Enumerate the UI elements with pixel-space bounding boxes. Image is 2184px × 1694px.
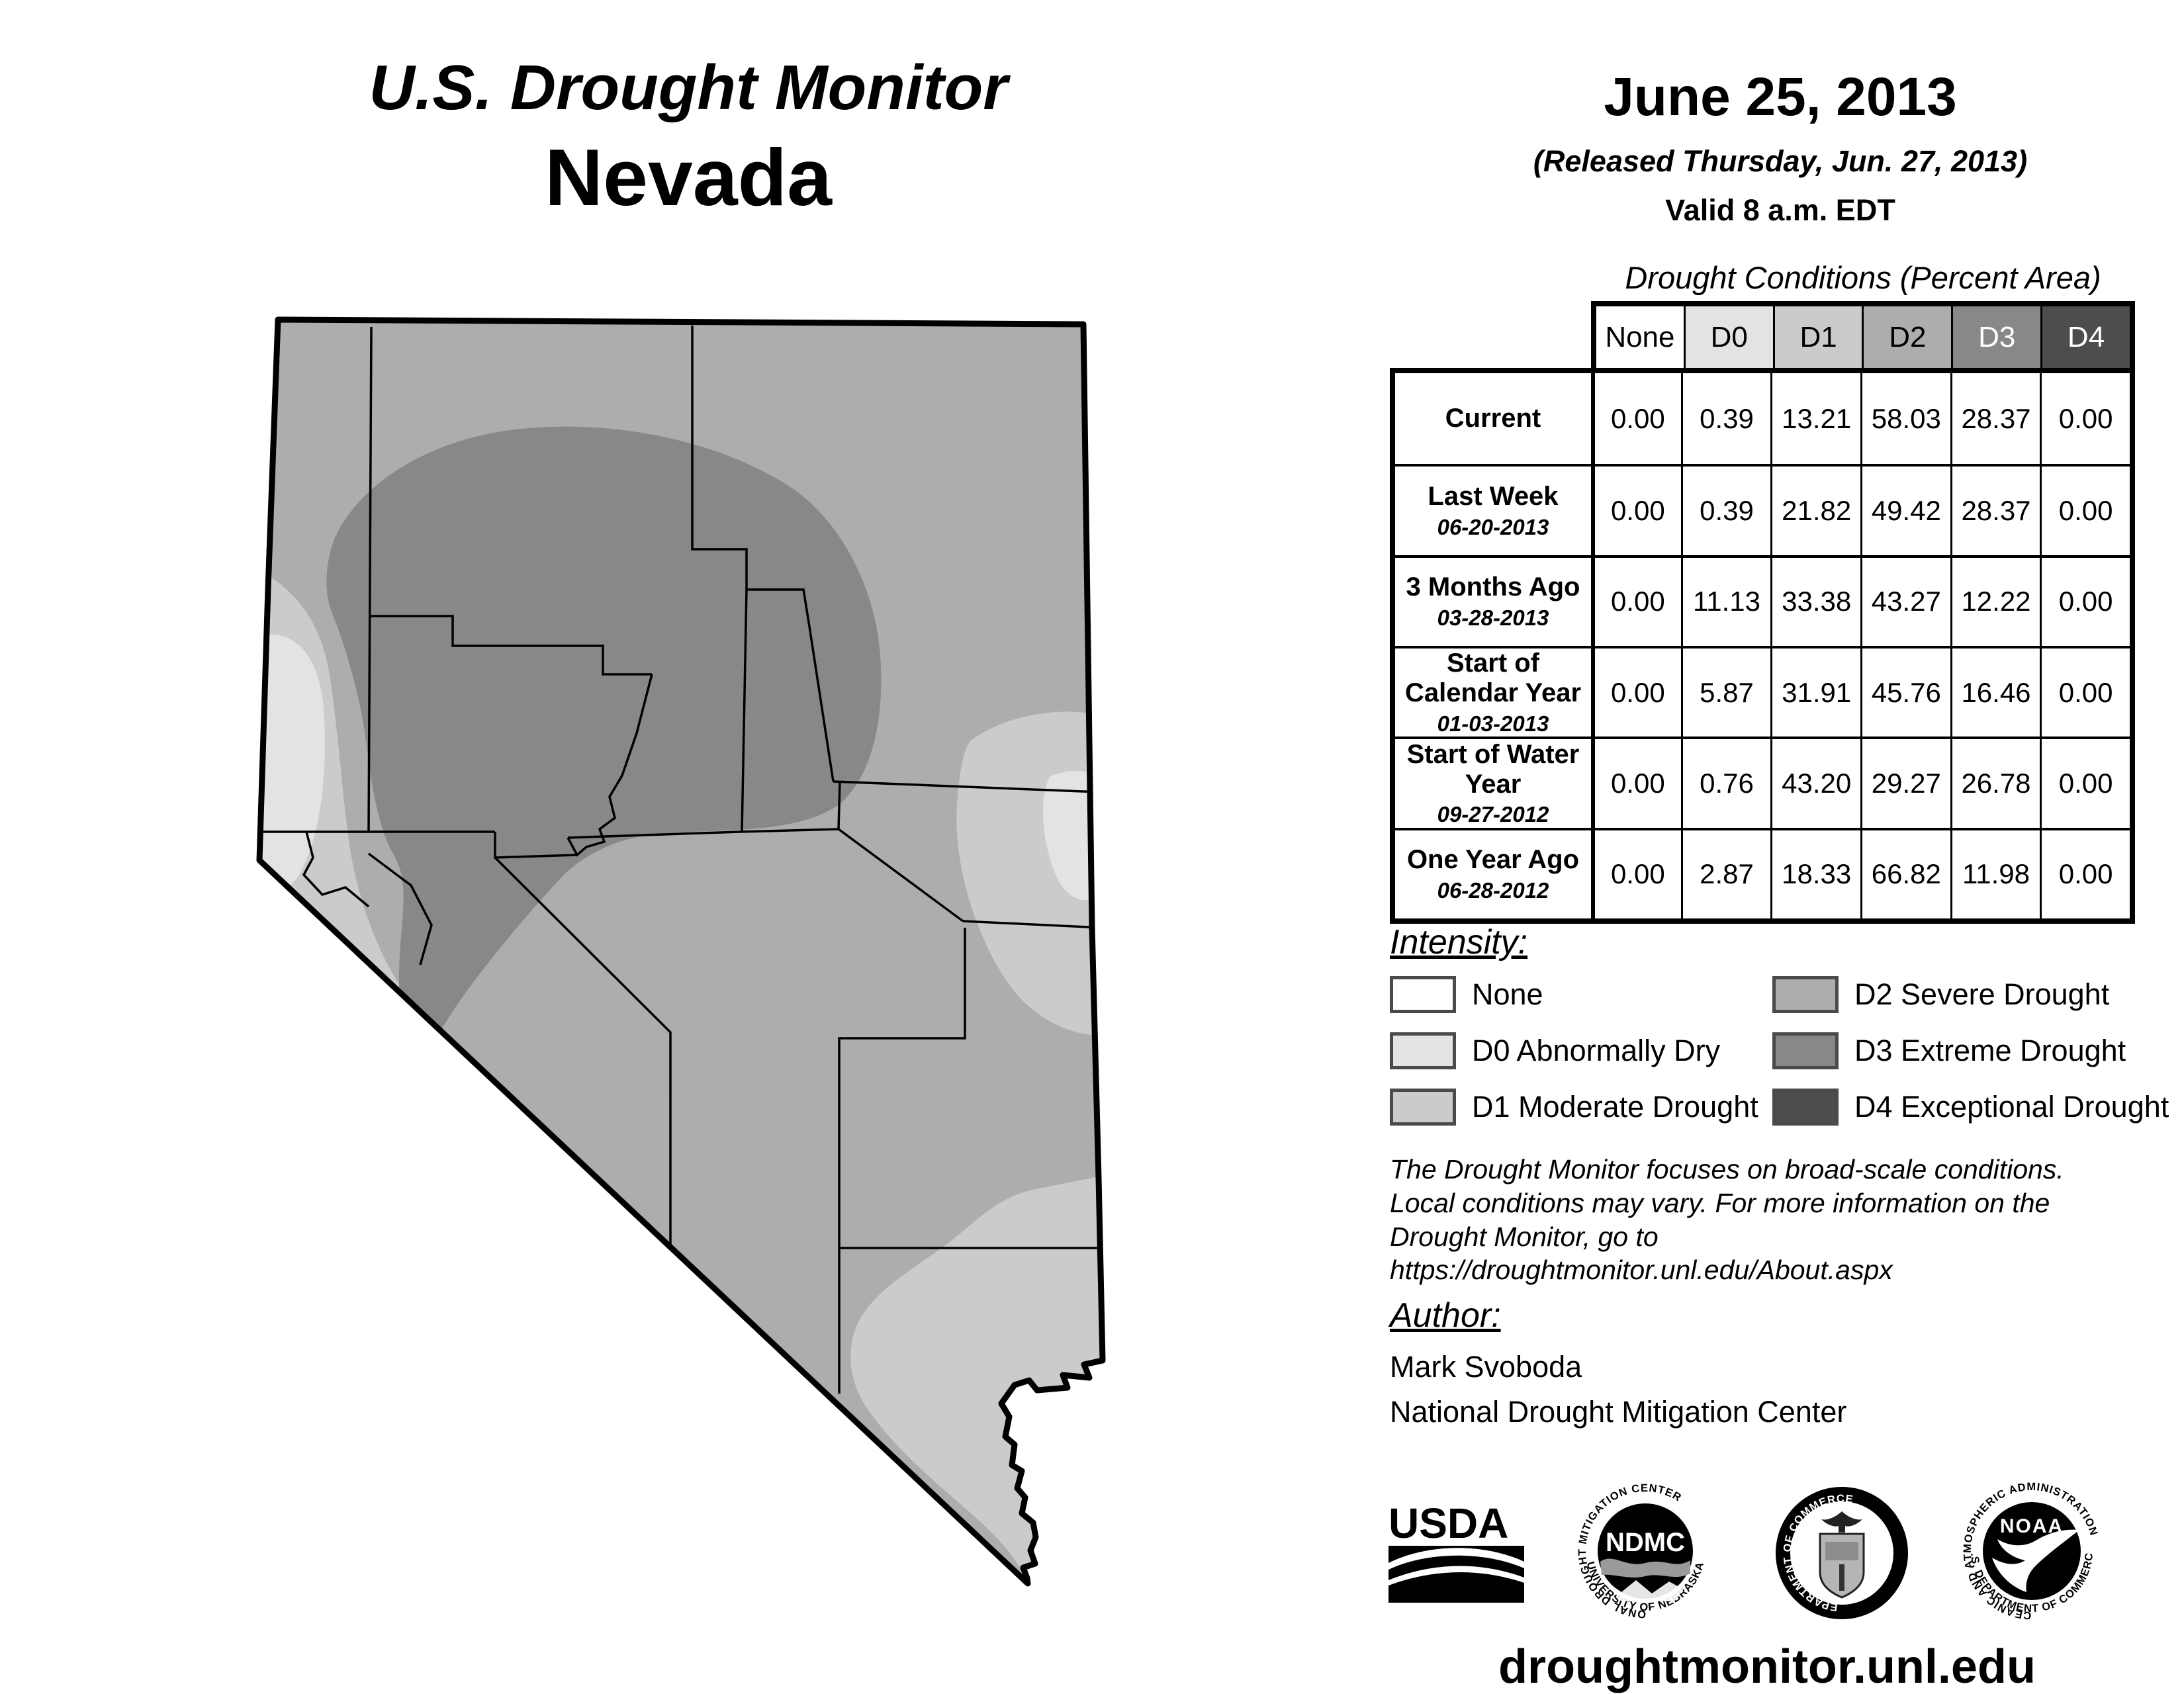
- disclaimer-text: The Drought Monitor focuses on broad-sca…: [1390, 1153, 2164, 1287]
- legend-item-d0: D0 Abnormally Dry: [1390, 1032, 1720, 1069]
- author-organization: National Drought Mitigation Center: [1390, 1395, 1846, 1429]
- table-cell: 28.37: [1950, 464, 2040, 555]
- noaa-wordmark: NOAA: [2000, 1515, 2064, 1537]
- department-of-commerce-seal: DEPARTMENT OF COMMERCE UNITED STATES OF …: [1775, 1486, 1909, 1620]
- table-cell: 13.21: [1770, 373, 1860, 464]
- column-header-d3: D3: [1951, 306, 2040, 368]
- table-header-row: None D0 D1 D2 D3 D4: [1591, 301, 2135, 368]
- table-cell: 2.87: [1681, 828, 1771, 918]
- legend-swatch-d4: [1772, 1089, 1839, 1126]
- legend-label: D1 Moderate Drought: [1472, 1090, 1758, 1124]
- legend-swatch-d1: [1390, 1089, 1456, 1126]
- row-date: 03-28-2013: [1437, 606, 1549, 631]
- legend-label: D3 Extreme Drought: [1854, 1034, 2126, 1068]
- author-heading: Author:: [1390, 1296, 1501, 1335]
- row-label: Last Week06-20-2013: [1395, 464, 1591, 555]
- table-cell: 45.76: [1860, 646, 1950, 736]
- row-label: Start of Calendar Year01-03-2013: [1395, 646, 1591, 736]
- drought-monitor-report: U.S. Drought Monitor Nevada June 25, 201…: [0, 0, 2184, 1687]
- legend-item-d3: D3 Extreme Drought: [1772, 1032, 2126, 1069]
- usda-wordmark: USDA: [1388, 1503, 1508, 1547]
- table-cell: 0.76: [1681, 736, 1771, 827]
- table-cell: 29.27: [1860, 736, 1950, 827]
- table-title: Drought Conditions (Percent Area): [1591, 259, 2135, 296]
- table-cell: 11.13: [1681, 555, 1771, 646]
- row-label: One Year Ago06-28-2012: [1395, 828, 1591, 918]
- table-cell: 0.00: [2040, 828, 2130, 918]
- table-cell: 33.38: [1770, 555, 1860, 646]
- ndmc-logo: NATIONAL DROUGHT MITIGATION CENTER UNIVE…: [1575, 1481, 1715, 1621]
- column-header-d1: D1: [1773, 306, 1862, 368]
- row-label: Start of Water Year09-27-2012: [1395, 736, 1591, 827]
- legend-label: None: [1472, 977, 1543, 1012]
- table-cell: 0.00: [1591, 555, 1681, 646]
- table-cell: 28.37: [1950, 373, 2040, 464]
- legend-swatch-none: [1390, 976, 1456, 1013]
- legend-item-d1: D1 Moderate Drought: [1390, 1089, 1758, 1126]
- table-cell: 0.00: [2040, 373, 2130, 464]
- state-name: Nevada: [238, 131, 1138, 224]
- table-cell: 43.20: [1770, 736, 1860, 827]
- table-cell: 5.87: [1681, 646, 1771, 736]
- website-url: droughtmonitor.unl.edu: [1377, 1640, 2158, 1694]
- row-label: 3 Months Ago03-28-2013: [1395, 555, 1591, 646]
- legend-label: D0 Abnormally Dry: [1472, 1034, 1720, 1068]
- table-cell: 18.33: [1770, 828, 1860, 918]
- table-cell: 0.00: [2040, 736, 2130, 827]
- table-cell: 0.00: [2040, 646, 2130, 736]
- table-cell: 0.00: [1591, 373, 1681, 464]
- legend-swatch-d0: [1390, 1032, 1456, 1069]
- row-date: 06-28-2012: [1437, 879, 1549, 903]
- legend-swatch-d3: [1772, 1032, 1839, 1069]
- row-label: Current: [1395, 373, 1591, 464]
- table-cell: 26.78: [1950, 736, 2040, 827]
- drought-conditions-table: Current 0.00 0.39 13.21 58.03 28.37 0.00…: [1390, 368, 2135, 924]
- legend-item-d2: D2 Severe Drought: [1772, 976, 2109, 1013]
- author-name: Mark Svoboda: [1390, 1350, 1582, 1384]
- ndmc-wordmark: NDMC: [1606, 1528, 1685, 1557]
- report-title: U.S. Drought Monitor: [238, 52, 1138, 124]
- legend-swatch-d2: [1772, 976, 1839, 1013]
- row-date: 06-20-2013: [1437, 515, 1549, 540]
- table-cell: 0.39: [1681, 373, 1771, 464]
- table-cell: 0.00: [1591, 736, 1681, 827]
- county-boundary: [839, 781, 840, 829]
- table-cell: 49.42: [1860, 464, 1950, 555]
- table-cell: 21.82: [1770, 464, 1860, 555]
- legend-label: D2 Severe Drought: [1854, 977, 2109, 1012]
- table-cell: 0.00: [2040, 555, 2130, 646]
- valid-time: Valid 8 a.m. EDT: [1416, 193, 2144, 228]
- legend-label: D4 Exceptional Drought: [1854, 1090, 2169, 1124]
- column-header-d0: D0: [1684, 306, 1773, 368]
- column-header-d2: D2: [1862, 306, 1951, 368]
- table-cell: 12.22: [1950, 555, 2040, 646]
- legend-item-none: None: [1390, 976, 1543, 1013]
- table-cell: 0.00: [1591, 464, 1681, 555]
- row-date: 09-27-2012: [1437, 803, 1549, 827]
- table-cell: 43.27: [1860, 555, 1950, 646]
- usda-logo: USDA: [1388, 1503, 1524, 1603]
- table-cell: 0.00: [1591, 646, 1681, 736]
- release-date: (Released Thursday, Jun. 27, 2013): [1416, 144, 2144, 179]
- table-cell: 0.39: [1681, 464, 1771, 555]
- legend-item-d4: D4 Exceptional Drought: [1772, 1089, 2169, 1126]
- table-cell: 58.03: [1860, 373, 1950, 464]
- table-cell: 0.00: [1591, 828, 1681, 918]
- table-cell: 0.00: [2040, 464, 2130, 555]
- column-header-d4: D4: [2040, 306, 2130, 368]
- report-date: June 25, 2013: [1416, 66, 2144, 128]
- table-cell: 31.91: [1770, 646, 1860, 736]
- table-cell: 16.46: [1950, 646, 2040, 736]
- intensity-heading: Intensity:: [1390, 922, 1527, 962]
- table-cell: 11.98: [1950, 828, 2040, 918]
- noaa-logo: NATIONAL OCEANIC AND ATMOSPHERIC ADMINIS…: [1962, 1481, 2102, 1621]
- table-cell: 66.82: [1860, 828, 1950, 918]
- row-date: 01-03-2013: [1437, 712, 1549, 736]
- column-header-none: None: [1596, 306, 1684, 368]
